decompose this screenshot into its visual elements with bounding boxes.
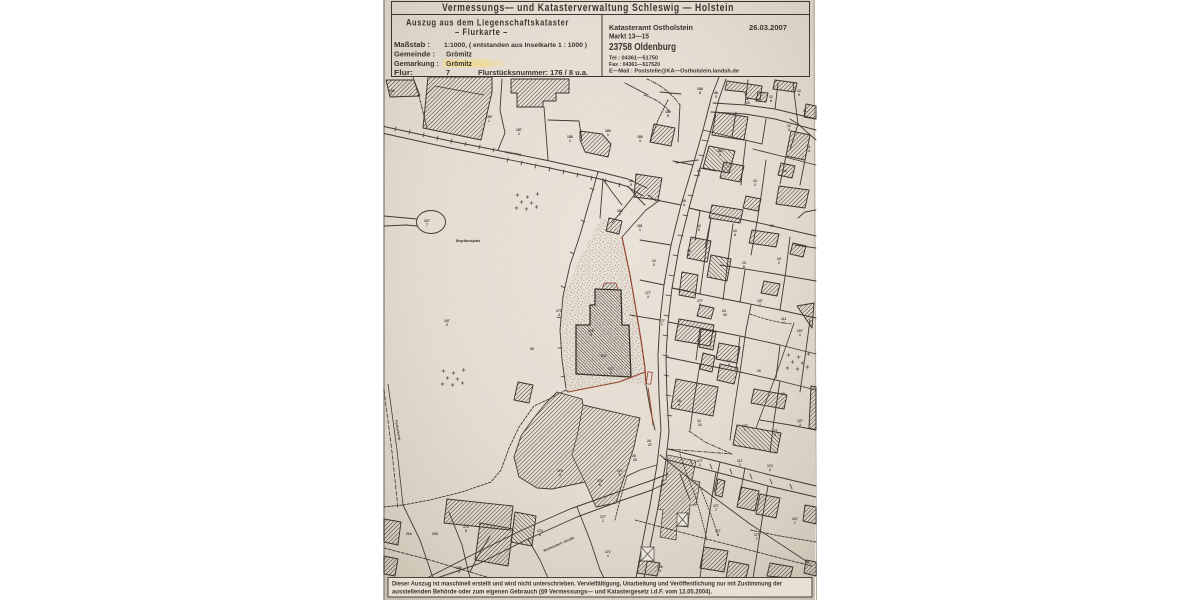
svg-text:5: 5 bbox=[458, 570, 460, 574]
svg-text:1: 1 bbox=[739, 463, 741, 467]
svg-text:Grömitz: Grömitz bbox=[446, 52, 472, 59]
svg-text:2: 2 bbox=[719, 153, 721, 157]
svg-text:203: 203 bbox=[432, 532, 438, 536]
svg-text:7: 7 bbox=[446, 70, 450, 77]
svg-text:Maßstab :: Maßstab : bbox=[394, 42, 430, 49]
svg-text:4: 4 bbox=[559, 473, 561, 477]
svg-text:27: 27 bbox=[648, 443, 652, 447]
svg-text:7: 7 bbox=[661, 323, 663, 327]
svg-text:1: 1 bbox=[518, 132, 520, 136]
svg-text:4: 4 bbox=[808, 149, 810, 153]
svg-text:8: 8 bbox=[590, 333, 592, 337]
svg-text:39: 39 bbox=[530, 347, 534, 351]
svg-text:3: 3 bbox=[647, 295, 649, 299]
svg-text:5: 5 bbox=[699, 303, 701, 307]
svg-text:2: 2 bbox=[653, 263, 655, 267]
svg-text:23758 Oldenburg: 23758 Oldenburg bbox=[609, 42, 676, 53]
svg-text:19: 19 bbox=[757, 369, 761, 373]
svg-text:3: 3 bbox=[715, 95, 717, 99]
svg-text:1:1000, ( entstanden aus Insel: 1:1000, ( entstanden aus Inselkarte 1 : … bbox=[444, 42, 587, 49]
svg-text:Markt 13—15: Markt 13—15 bbox=[609, 32, 649, 41]
svg-text:Begräbnisplatz: Begräbnisplatz bbox=[456, 239, 481, 243]
svg-text:7: 7 bbox=[698, 343, 700, 347]
svg-text:7: 7 bbox=[756, 537, 758, 541]
svg-text:26.03.2007: 26.03.2007 bbox=[749, 23, 787, 32]
svg-text:2: 2 bbox=[778, 261, 780, 265]
svg-text:847: 847 bbox=[601, 354, 607, 358]
svg-text:Fax : 04361—517520: Fax : 04361—517520 bbox=[609, 62, 660, 68]
svg-text:E—Mail : Poststelle@KA—Osthols: E—Mail : Poststelle@KA—Ostholstein.lands… bbox=[609, 69, 739, 75]
svg-text:19: 19 bbox=[770, 224, 774, 228]
svg-text:6: 6 bbox=[734, 233, 736, 237]
svg-text:5: 5 bbox=[667, 114, 669, 118]
svg-text:1: 1 bbox=[569, 139, 571, 143]
svg-text:1: 1 bbox=[639, 228, 641, 232]
svg-text:ausstellenden Behörde oder zum: ausstellenden Behörde oder zum eigenen G… bbox=[392, 590, 712, 596]
svg-text:5: 5 bbox=[630, 183, 632, 187]
svg-text:204: 204 bbox=[406, 532, 412, 536]
svg-text:8: 8 bbox=[770, 99, 772, 103]
svg-text:7: 7 bbox=[744, 428, 746, 432]
svg-text:Gemarkung :: Gemarkung : bbox=[394, 61, 439, 68]
svg-text:1: 1 bbox=[488, 119, 490, 123]
svg-text:6: 6 bbox=[688, 253, 690, 257]
svg-text:13: 13 bbox=[783, 169, 787, 173]
svg-text:2: 2 bbox=[699, 463, 701, 467]
svg-text:7: 7 bbox=[619, 213, 621, 217]
svg-text:Flurstücksnummer: 176 / 8 u.a.: Flurstücksnummer: 176 / 8 u.a. bbox=[478, 70, 588, 77]
svg-text:8: 8 bbox=[619, 473, 621, 477]
svg-text:2: 2 bbox=[446, 323, 448, 327]
svg-text:2: 2 bbox=[610, 371, 612, 375]
svg-text:4: 4 bbox=[558, 313, 560, 317]
svg-text:Tel : 04361—51750: Tel : 04361—51750 bbox=[609, 56, 658, 62]
svg-text:9: 9 bbox=[798, 93, 800, 97]
svg-text:7: 7 bbox=[715, 508, 717, 512]
svg-text:3: 3 bbox=[799, 423, 801, 427]
svg-text:– Flurkarte –: – Flurkarte – bbox=[455, 27, 508, 38]
svg-text:Dieser Auszug ist maschinell e: Dieser Auszug ist maschinell erstellt un… bbox=[392, 582, 783, 588]
svg-text:8: 8 bbox=[539, 533, 541, 537]
svg-text:19: 19 bbox=[781, 392, 785, 396]
svg-text:9: 9 bbox=[728, 363, 730, 367]
svg-text:1: 1 bbox=[602, 519, 604, 523]
svg-text:1: 1 bbox=[607, 133, 609, 137]
svg-text:8: 8 bbox=[743, 265, 745, 269]
svg-text:Flur:: Flur: bbox=[394, 70, 413, 77]
svg-text:1: 1 bbox=[607, 554, 609, 558]
svg-text:3: 3 bbox=[717, 533, 719, 537]
svg-text:Gemeinde :: Gemeinde : bbox=[394, 52, 435, 59]
svg-text:3: 3 bbox=[639, 139, 641, 143]
svg-text:3: 3 bbox=[659, 569, 661, 573]
svg-text:7: 7 bbox=[783, 321, 785, 325]
svg-text:23: 23 bbox=[723, 313, 727, 317]
svg-text:1: 1 bbox=[799, 333, 801, 337]
svg-text:10: 10 bbox=[698, 423, 702, 427]
svg-text:10: 10 bbox=[746, 101, 750, 105]
svg-text:5: 5 bbox=[698, 173, 700, 177]
svg-text:2: 2 bbox=[804, 113, 806, 117]
svg-text:6: 6 bbox=[599, 483, 601, 487]
svg-text:2: 2 bbox=[769, 468, 771, 472]
svg-text:5: 5 bbox=[698, 228, 700, 232]
svg-text:7: 7 bbox=[794, 521, 796, 525]
svg-text:23: 23 bbox=[633, 458, 637, 462]
svg-text:2: 2 bbox=[759, 303, 761, 307]
svg-text:9: 9 bbox=[678, 403, 680, 407]
svg-text:8: 8 bbox=[699, 91, 701, 95]
svg-text:3: 3 bbox=[683, 203, 685, 207]
svg-text:7: 7 bbox=[426, 223, 428, 227]
svg-text:5: 5 bbox=[465, 529, 467, 533]
svg-text:3: 3 bbox=[788, 128, 790, 132]
svg-text:2: 2 bbox=[774, 433, 776, 437]
svg-text:7: 7 bbox=[390, 93, 392, 97]
svg-text:2: 2 bbox=[754, 183, 756, 187]
svg-text:Grömitz: Grömitz bbox=[446, 61, 472, 68]
svg-text:Vermessungs— und Katasterverwa: Vermessungs— und Katasterverwaltung Schl… bbox=[442, 2, 734, 14]
